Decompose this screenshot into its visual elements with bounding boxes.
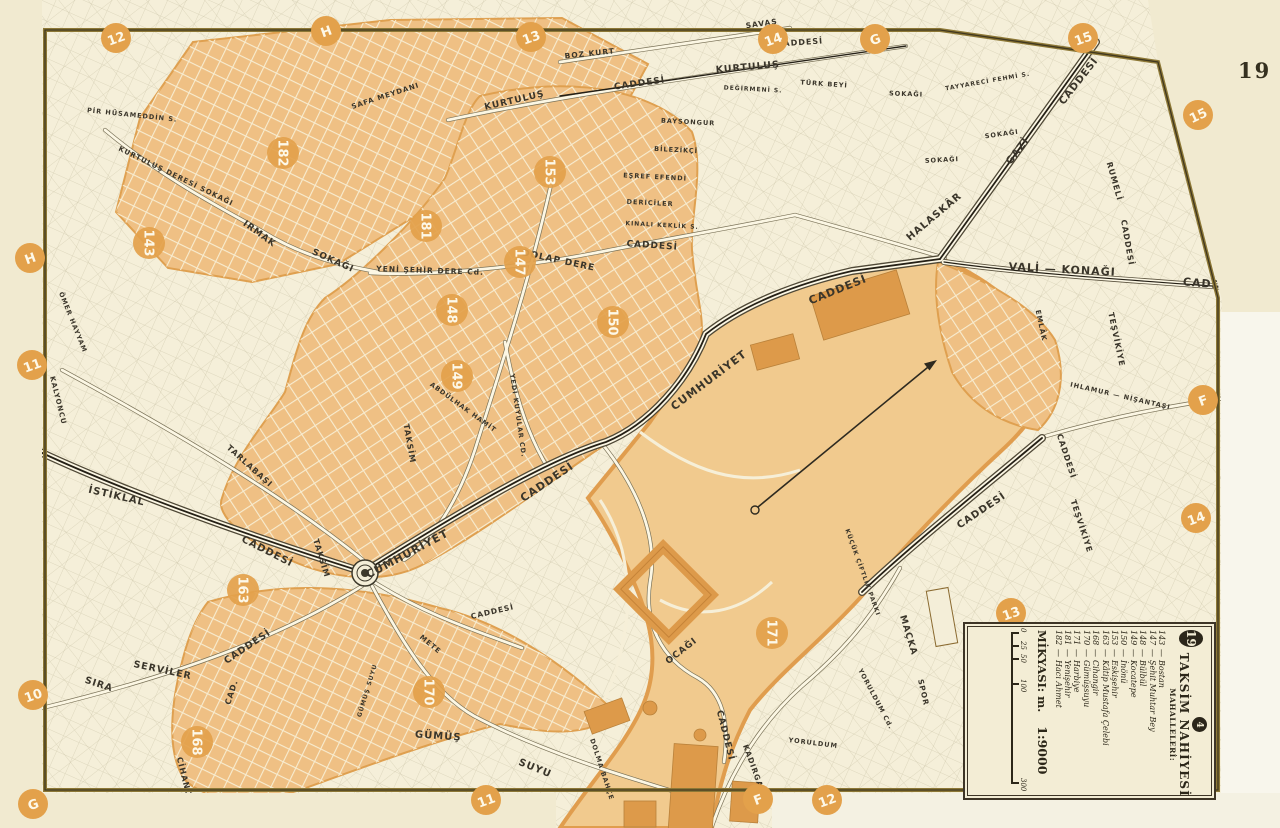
grid-ref-11: 11 — [17, 350, 47, 380]
svg-text:168: 168 — [189, 728, 204, 755]
margin-right-white — [1221, 312, 1280, 794]
list-item: 150—İnönü — [1119, 630, 1128, 788]
list-item: 170—Gümüşsuyu — [1081, 630, 1090, 788]
grid-ref-H: H — [311, 16, 341, 46]
grid-ref-15: 15 — [1068, 23, 1098, 53]
district-number-badge: 19 — [1179, 630, 1203, 647]
legend-title: TAKSİM NAHİYESİ — [1177, 653, 1191, 797]
mahalle-circle-182: 182 — [267, 137, 299, 169]
palace-block — [624, 801, 656, 827]
scale-tick: 300 — [1011, 782, 1019, 784]
mahalle-circle-153: 153 — [534, 156, 566, 188]
legend-rotated-content: 19 4 TAKSİM NAHİYESİ MAHALLELERİ: 143—Bo… — [965, 624, 1210, 794]
svg-text:148: 148 — [444, 296, 459, 323]
mahalle-circle-181: 181 — [410, 210, 442, 242]
page-number: 19 — [1238, 58, 1271, 83]
svg-text:149: 149 — [449, 362, 464, 389]
grid-ref-H: H — [15, 243, 45, 273]
list-item: 171—Harbiye — [1072, 630, 1081, 788]
grid-ref-15: 15 — [1183, 100, 1213, 130]
scale-ruler: 0 25 50 100 300 — [1007, 630, 1025, 788]
list-item: 163—Kâtip Mustafa Çelebi — [1100, 630, 1109, 788]
list-item: 153—Eskişehir — [1110, 630, 1119, 788]
street-label-sokagi: SOKAĞI — [889, 88, 923, 98]
grid-ref-14: 14 — [758, 24, 788, 54]
grid-ref-F: F — [1188, 385, 1218, 415]
svg-text:150: 150 — [605, 308, 620, 335]
svg-text:171: 171 — [764, 619, 779, 646]
svg-text:143: 143 — [141, 229, 156, 256]
street-label-sokagi: SOKAĞI — [925, 154, 959, 165]
mahalle-circle-170: 170 — [413, 676, 445, 708]
section-number-badge: 4 — [1192, 717, 1207, 732]
mahalle-list: 143—Bostan 147—Şehit Muhtar Bey 148—Bülb… — [1053, 630, 1166, 788]
mahalle-circle-171: 171 — [756, 617, 788, 649]
list-item: 168—Cihangir — [1091, 630, 1100, 788]
mahalle-circle-143: 143 — [133, 227, 165, 259]
list-item: 147—Şehit Muhtar Bey — [1147, 630, 1156, 788]
scanned-map-page: { "page": { "number": "19" }, "colors": … — [0, 0, 1280, 828]
grid-ref-10: 10 — [18, 680, 48, 710]
legend-box: 19 4 TAKSİM NAHİYESİ MAHALLELERİ: 143—Bo… — [963, 622, 1216, 800]
svg-text:147: 147 — [512, 248, 527, 275]
grid-ref-G: G — [18, 789, 48, 819]
svg-text:170: 170 — [421, 678, 436, 705]
scale-tick: 50 — [1011, 658, 1019, 660]
scale-tick: 0 — [1011, 632, 1019, 634]
list-item: 182—Hacı Ahmet — [1053, 630, 1062, 788]
mahalle-circle-149: 149 — [441, 360, 473, 392]
scale-ruler-bar — [1011, 632, 1013, 784]
svg-text:182: 182 — [275, 139, 290, 166]
list-item: 181—Yenişehir — [1063, 630, 1072, 788]
grid-ref-F: F — [743, 784, 773, 814]
list-item: 149—Kocatepe — [1128, 630, 1137, 788]
svg-text:163: 163 — [235, 576, 250, 603]
scale-tick: 100 — [1011, 683, 1019, 685]
scale-statement: MİKYASI: m.1:9000 — [1035, 630, 1050, 788]
svg-text:153: 153 — [542, 158, 557, 185]
mahalle-circle-163: 163 — [227, 574, 259, 606]
list-item: 143—Bostan — [1157, 630, 1166, 788]
grid-ref-13: 13 — [516, 22, 546, 52]
mahalle-circle-150: 150 — [597, 306, 629, 338]
grid-ref-14: 14 — [1181, 503, 1211, 533]
list-item: 148—Bülbül — [1138, 630, 1147, 788]
svg-text:181: 181 — [418, 212, 433, 239]
mahalle-circle-148: 148 — [436, 294, 468, 326]
grid-ref-12: 12 — [101, 23, 131, 53]
scale-tick: 25 — [1011, 645, 1019, 647]
palace-block — [668, 744, 718, 828]
mahalle-circle-147: 147 — [504, 246, 536, 278]
legend-subtitle: MAHALLELERİ: — [1168, 653, 1177, 797]
mahalle-circle-168: 168 — [181, 726, 213, 758]
grid-ref-11: 11 — [471, 785, 501, 815]
grid-ref-12: 12 — [812, 785, 842, 815]
grid-ref-G: G — [860, 24, 890, 54]
